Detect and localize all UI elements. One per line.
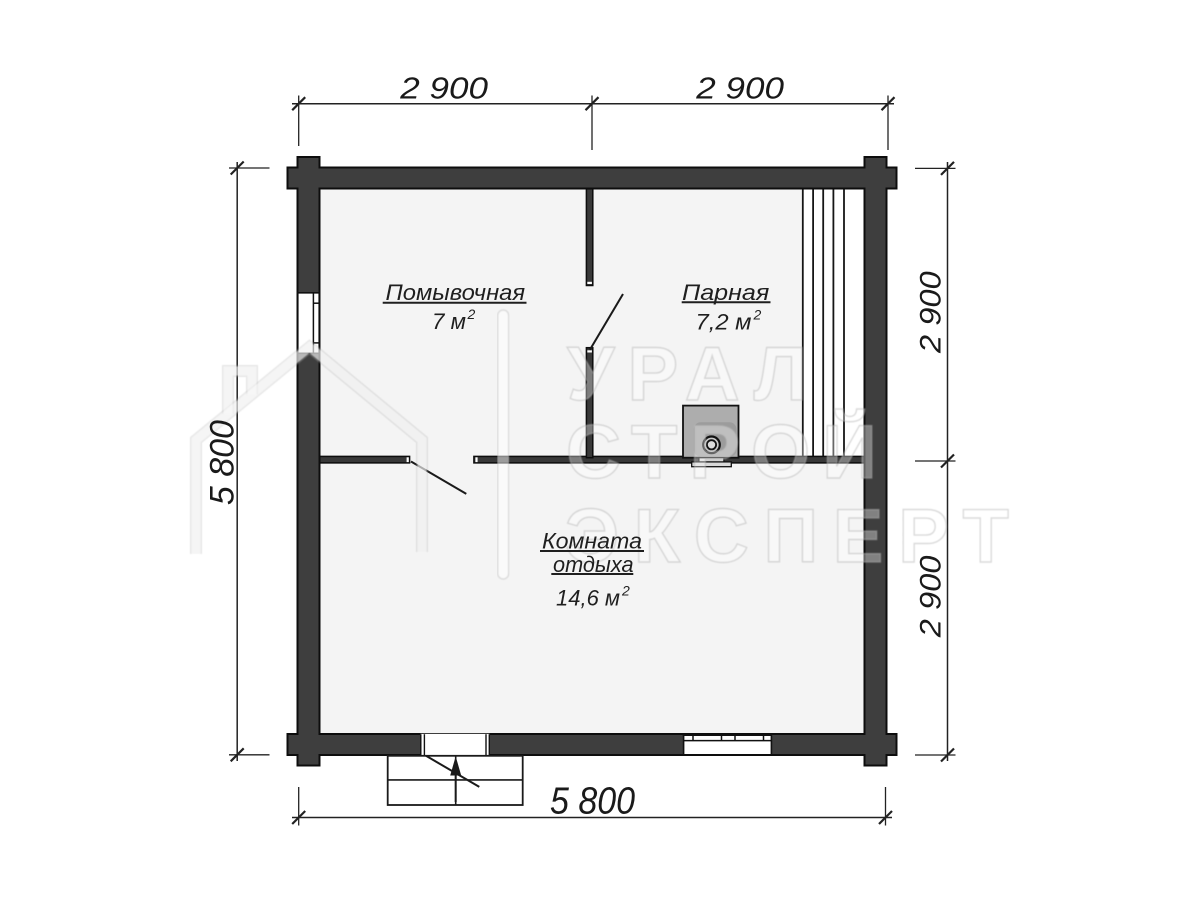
svg-text:2 900: 2 900 [695, 71, 784, 106]
svg-text:Парная: Парная [682, 280, 770, 305]
svg-text:СТРОЙ: СТРОЙ [566, 409, 889, 495]
svg-text:7,2 м: 7,2 м [696, 310, 752, 335]
svg-text:14,6 м: 14,6 м [556, 586, 620, 611]
svg-text:2: 2 [753, 307, 762, 323]
svg-text:Помывочная: Помывочная [386, 280, 526, 305]
svg-text:2: 2 [621, 583, 630, 599]
svg-text:7 м: 7 м [432, 309, 466, 334]
svg-text:2 900: 2 900 [914, 271, 947, 354]
svg-text:5 800: 5 800 [550, 780, 635, 822]
svg-text:УРАЛ: УРАЛ [567, 332, 820, 417]
svg-text:Комната: Комната [542, 529, 642, 554]
svg-text:2 900: 2 900 [399, 71, 488, 106]
svg-text:2: 2 [467, 306, 476, 322]
svg-text:5 800: 5 800 [203, 420, 241, 505]
svg-text:2 900: 2 900 [914, 555, 947, 638]
